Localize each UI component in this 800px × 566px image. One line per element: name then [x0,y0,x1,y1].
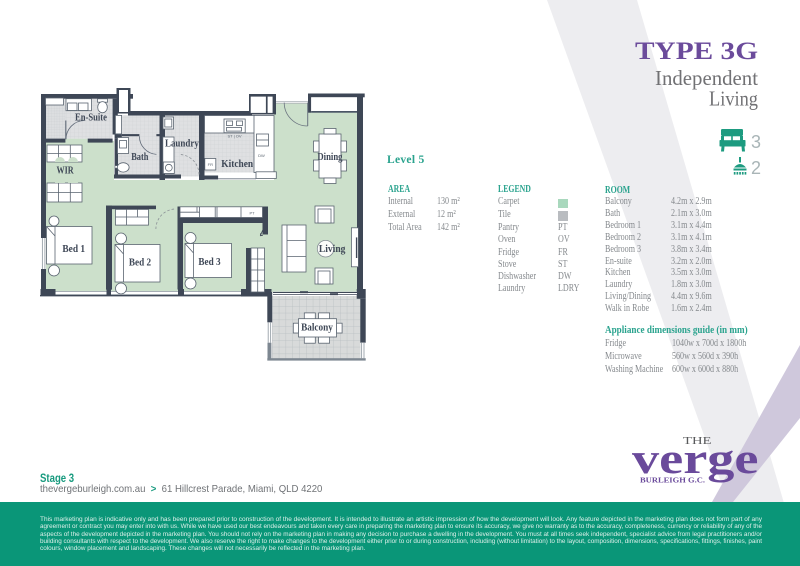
svg-text:ST | OV: ST | OV [227,133,241,138]
svg-text:Bed 2: Bed 2 [129,257,152,269]
svg-text:Bed 1: Bed 1 [62,243,85,255]
svg-text:WIR: WIR [57,165,75,177]
svg-text:Laundry: Laundry [165,138,199,150]
svg-text:Living: Living [709,87,758,111]
svg-text:PT: PT [249,211,255,216]
svg-text:Balcony: Balcony [301,322,333,334]
svg-text:Kitchen: Kitchen [221,158,253,170]
svg-text:Living: Living [319,243,346,255]
svg-text:Dining: Dining [317,151,342,163]
svg-text:Bed 3: Bed 3 [198,256,221,268]
svg-text:FR: FR [208,162,213,167]
svg-text:DW: DW [258,153,265,158]
svg-text:En-Suite: En-Suite [75,112,107,124]
svg-text:BURLEIGH G.C.: BURLEIGH G.C. [640,476,705,485]
svg-text:TYPE 3G: TYPE 3G [635,38,758,65]
svg-text:Bath: Bath [131,151,148,163]
